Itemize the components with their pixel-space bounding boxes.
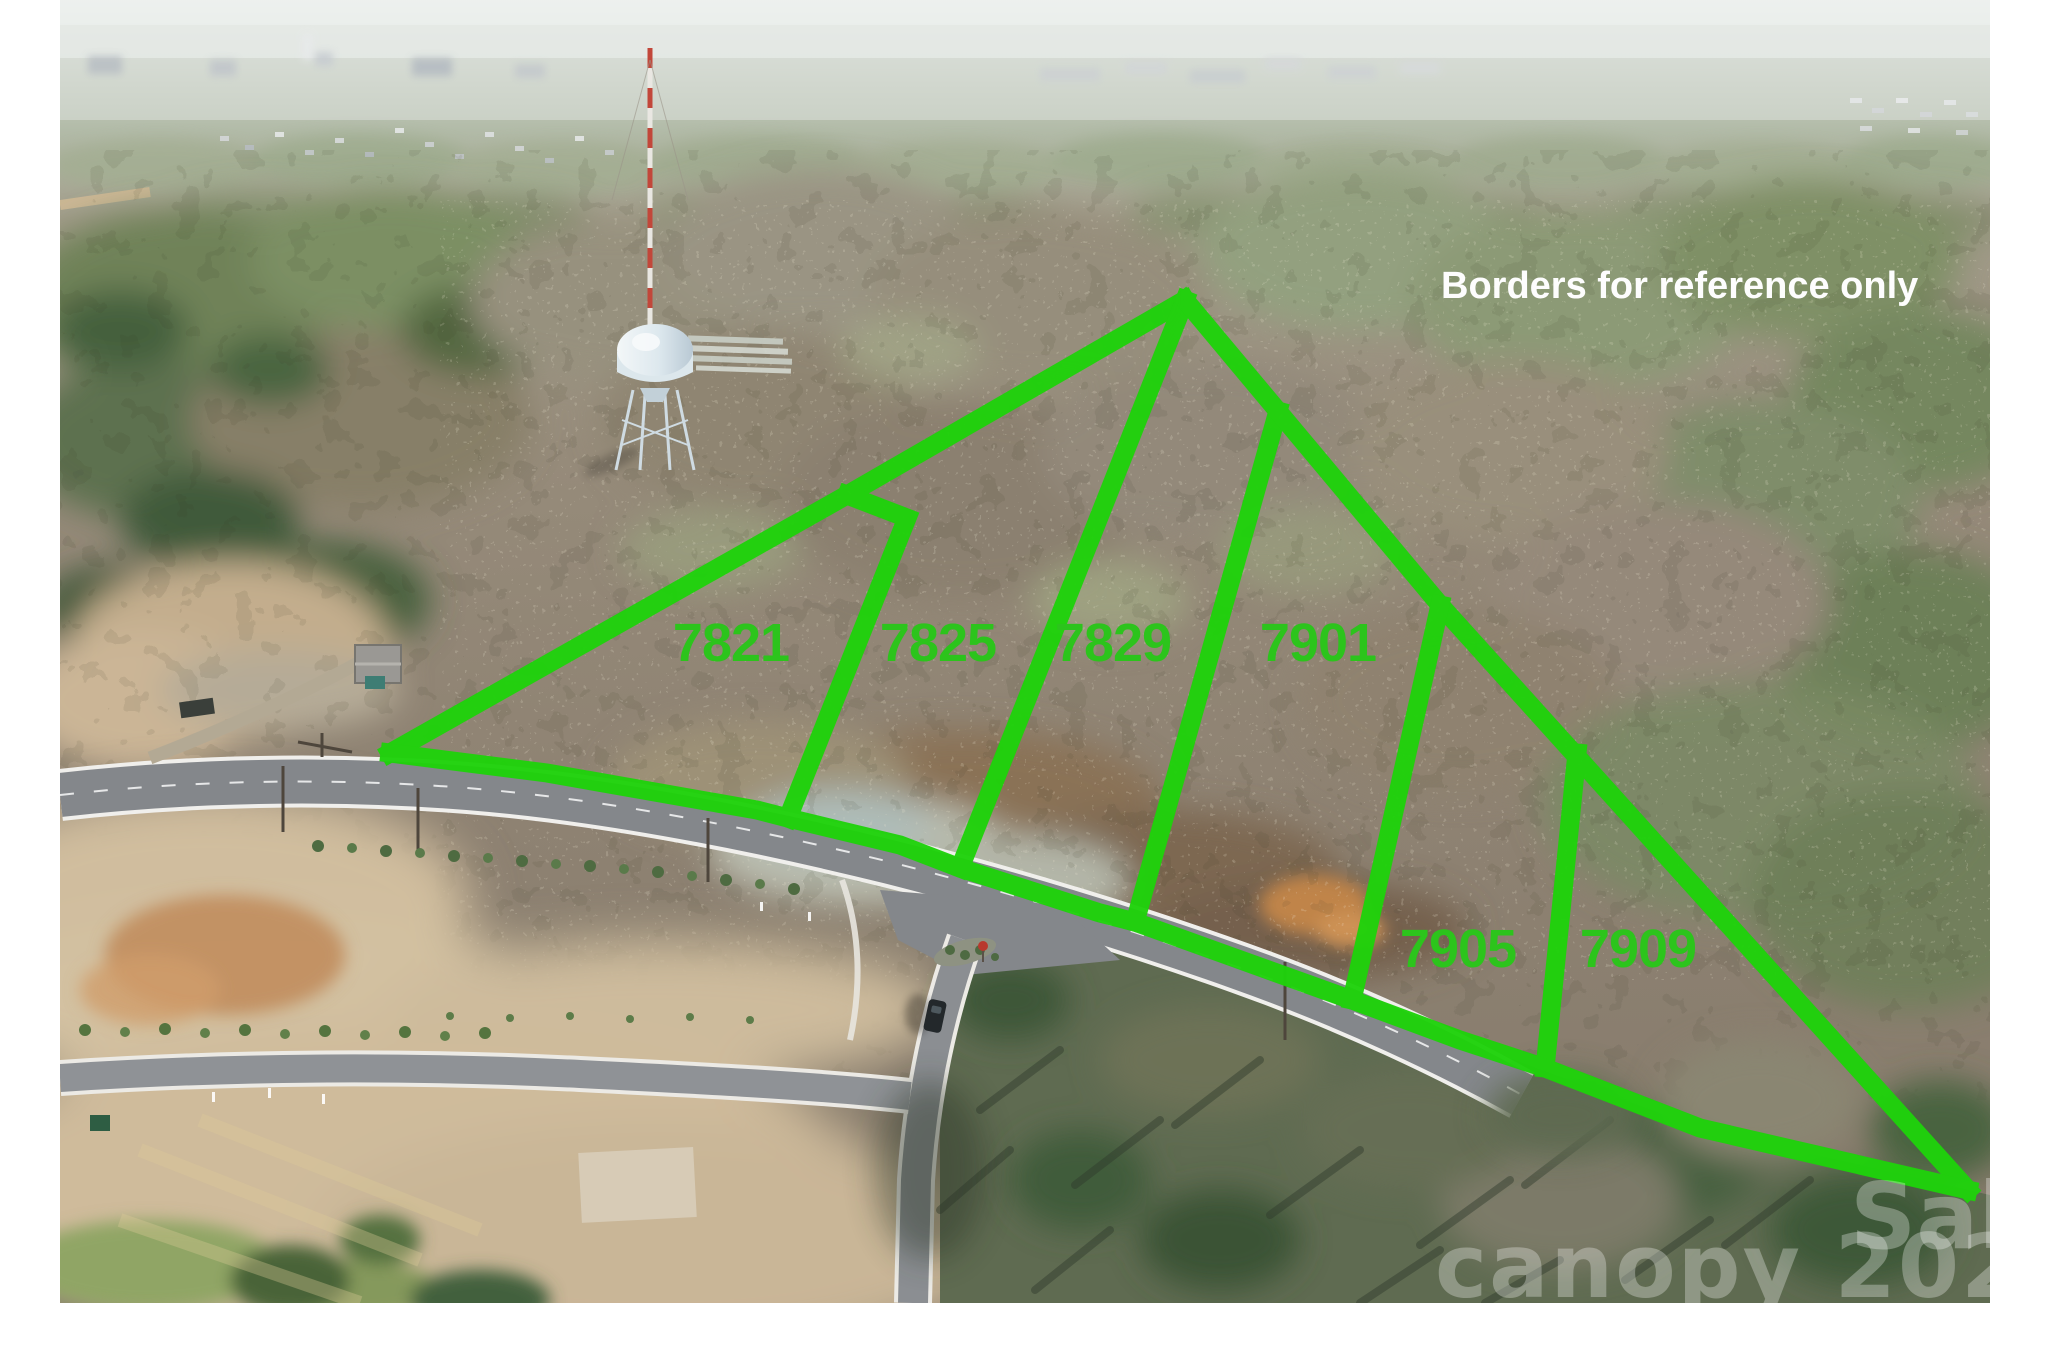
parcel-label-7909: 7909	[1580, 919, 1696, 979]
parcel-label-7821: 7821	[673, 613, 789, 673]
aerial-scene: 7821 7825 7829 7901 7905 7909 Borders fo…	[60, 0, 1990, 1303]
aerial-photo: 7821 7825 7829 7901 7905 7909 Borders fo…	[60, 0, 1990, 1303]
parcel-label-7901: 7901	[1260, 613, 1376, 673]
disclaimer-text: Borders for reference only	[1441, 265, 1918, 307]
parcel-label-7825: 7825	[880, 613, 996, 673]
shed	[355, 645, 401, 689]
parcel-label-7829: 7829	[1055, 613, 1171, 673]
watermark-fragment-lower: canopy 202	[1435, 1215, 1990, 1303]
street-tree-shadow	[875, 1080, 985, 1260]
teal-tarp	[365, 676, 385, 689]
screenshot-canvas: 7821 7825 7829 7901 7905 7909 Borders fo…	[0, 0, 2048, 1351]
parcel-label-7905: 7905	[1400, 919, 1516, 979]
utility-box	[90, 1115, 110, 1131]
driveway-pad	[578, 1147, 697, 1223]
